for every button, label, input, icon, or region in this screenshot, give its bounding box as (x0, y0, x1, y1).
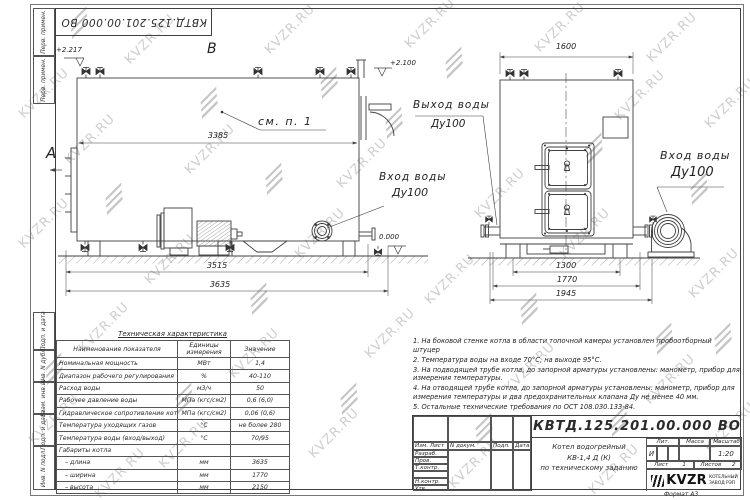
spec-name: Габариты котла (57, 444, 178, 456)
tb-scale-value: 1:20 (710, 446, 742, 461)
dim-1600: 1600 (545, 43, 587, 51)
note-item: 3. На подводящей трубе котла, до запорно… (413, 366, 740, 384)
sheet-value: 1 (682, 462, 686, 468)
spec-header-row: Наименование показателя Единицы измерени… (57, 341, 290, 358)
logo-sub-line: ЗАВОД РЭП (709, 481, 738, 487)
kvzr-logo: KVZR КОТЕЛЬНЫЙ ЗАВОД РЭП (646, 469, 742, 491)
tb-sign-label (413, 471, 448, 478)
view-label-b: В (207, 42, 217, 56)
sheets-label: Листов (700, 462, 721, 468)
spec-name: Гидравлическое сопротивление котла (57, 407, 178, 419)
table-row: Габариты котла (57, 444, 290, 456)
tb-rev-header: N докум. (448, 442, 491, 450)
elevation-mark-icon (64, 58, 406, 254)
spec-value: 50 (231, 382, 290, 394)
kvzr-logo-icon (651, 475, 664, 487)
spec-name: Номинальная мощность (57, 358, 178, 370)
tb-cell (513, 450, 531, 491)
spec-name: – длина (57, 457, 178, 469)
kvzr-logo-subtext: КОТЕЛЬНЫЙ ЗАВОД РЭП (709, 475, 738, 486)
spec-unit: МПа (кгс/см2) (178, 407, 231, 419)
view-label-a: А (46, 146, 56, 161)
outlet-dn: Ду100 (431, 119, 465, 130)
tb-cell (448, 416, 491, 442)
kvzr-logo-text: KVZR (666, 473, 707, 488)
tb-cell (491, 416, 513, 442)
tb-sign-label: Утв. (413, 485, 448, 491)
valve-icon (96, 68, 104, 79)
dim-3385: 3385 (196, 132, 240, 140)
spec-unit: % (178, 370, 231, 382)
spec-value (231, 444, 290, 456)
tb-product-name: Котел водогрейный КВ-1,4 Д (К) по технич… (531, 438, 646, 491)
tb-sign-label: Т.контр. (413, 464, 448, 471)
valve-icon (614, 70, 622, 81)
tb-cell (513, 416, 531, 442)
tb-rev-header: Подп. (491, 442, 513, 450)
spec-value: 0,6 (6,0) (231, 395, 290, 407)
table-row: – длинамм3635 (57, 457, 290, 469)
fan-icon (648, 215, 694, 258)
spec-value: 70/95 (231, 432, 290, 444)
fitting-valve-icon (486, 216, 493, 225)
spec-value: не более 280 (231, 419, 290, 431)
spec-header: Единицы измерения (178, 341, 231, 358)
tb-sheet: Лист 1 (646, 461, 694, 469)
table-row: – ширинамм1770 (57, 469, 290, 481)
elevation-right: +2.100 (390, 60, 416, 67)
drain-valve-icon (139, 241, 147, 252)
tb-mass-header: Масса (679, 438, 710, 446)
inlet-label-end: Вход воды (660, 150, 730, 161)
spec-name: Температура воды (вход/выход) (57, 432, 178, 444)
elevation-zero: 0.000 (379, 234, 399, 241)
spec-name: Рабочее давление воды (57, 395, 178, 407)
valve-icon (506, 70, 514, 81)
boiler-side-view (50, 58, 428, 296)
spec-unit: °С (178, 419, 231, 431)
spec-header: Наименование показателя (57, 341, 178, 358)
format-label: Формат А3 (664, 491, 698, 498)
spec-unit: °С (178, 432, 231, 444)
tb-cell (448, 450, 491, 491)
spec-name: Диапазон рабочего регулирования (57, 370, 178, 382)
spec-name: – ширина (57, 469, 178, 481)
tb-rev-header: Дата (513, 442, 531, 450)
spec-value: 1,4 (231, 358, 290, 370)
tb-sign-label: Н.контр. (413, 478, 448, 485)
spec-name: – высота (57, 481, 178, 493)
tb-lit-value: И (646, 446, 657, 461)
spec-unit: м3/ч (178, 382, 231, 394)
spec-value: 2150 (231, 481, 290, 493)
tb-doc-number: КВТД.125.201.00.000 ВО (531, 416, 742, 438)
spec-unit: МПа (кгс/см2) (178, 395, 231, 407)
table-row: Температура уходящих газов°Сне более 280 (57, 419, 290, 431)
valve-icon (316, 68, 324, 79)
note-item: 4. На отводящей трубе котла, до запорной… (413, 384, 740, 402)
product-name-line: Котел водогрейный (552, 442, 626, 453)
sheets-value: 2 (732, 462, 736, 468)
spec-unit: мм (178, 457, 231, 469)
tb-sign-label: Разраб. (413, 450, 448, 457)
see-note-label: см. п. 1 (258, 116, 313, 127)
dim-3515: 3515 (195, 262, 239, 270)
dim-3635: 3635 (198, 281, 242, 289)
tb-rev-header: Изм. Лист (413, 442, 448, 450)
dim-1945: 1945 (545, 290, 587, 298)
spec-unit: мм (178, 469, 231, 481)
spec-unit (178, 444, 231, 456)
tb-sheets: Листов 2 (694, 461, 742, 469)
sheet: KVZR.RUKVZR.RUKVZR.RUKVZR.RUKVZR.RUKVZR.… (0, 0, 750, 500)
note-item: 5. Остальные технические требования по О… (413, 403, 740, 412)
note-item: 1. На боковой стенке котла в области топ… (413, 337, 740, 355)
spec-value: 40-110 (231, 370, 290, 382)
table-row: Номинальная мощностьМВт1,4 (57, 358, 290, 370)
valve-icon (520, 70, 528, 81)
inlet-flange (312, 221, 332, 241)
outlet-label: Выход воды (413, 100, 490, 111)
tb-mass-value (679, 446, 710, 461)
inlet-dn-side: Ду100 (392, 187, 428, 198)
spec-table: Техническая характеристика Наименование … (56, 330, 289, 494)
tb-cell (491, 450, 513, 491)
table-row: Расход водым3/ч50 (57, 382, 290, 394)
table-row: Температура воды (вход/выход)°С70/95 (57, 432, 290, 444)
title-block: Изм. Лист N докум. Подп. Дата Разраб. Пр… (412, 415, 741, 490)
spec-value: 0,06 (0,6) (231, 407, 290, 419)
table-row: Диапазон рабочего регулирования%40-110 (57, 370, 290, 382)
spec-value: 1770 (231, 469, 290, 481)
drain-valve-icon (374, 246, 381, 255)
spec-name: Расход воды (57, 382, 178, 394)
note-item: 2. Температура воды на входе 70°С, на вы… (413, 356, 740, 365)
spec-header: Значение (231, 341, 290, 358)
tb-lit-header: Лит. (646, 438, 679, 446)
dim-1300: 1300 (545, 262, 587, 270)
tb-cell (413, 416, 448, 442)
table-row: – высотамм2150 (57, 481, 290, 493)
furnace-doors (535, 143, 594, 236)
spec-name: Температура уходящих газов (57, 419, 178, 431)
spec-table-title: Техническая характеристика (56, 330, 289, 338)
sheet-label: Лист (654, 462, 668, 468)
tb-sign-label: Пров. (413, 457, 448, 464)
dim-1770: 1770 (546, 276, 588, 284)
product-name-line: КВ-1,4 Д (К) (567, 453, 611, 464)
valve-icon (347, 68, 355, 79)
spec-unit: мм (178, 481, 231, 493)
inlet-dn-end: Ду100 (671, 166, 714, 179)
tb-cell (668, 446, 679, 461)
tb-scale-header: Масштаб (710, 438, 742, 446)
table-row: Гидравлическое сопротивление котлаМПа (к… (57, 407, 290, 419)
valve-icon (82, 68, 90, 79)
elevation-left: +2.217 (56, 47, 82, 54)
inlet-label-side: Вход воды (379, 172, 447, 183)
valve-icon (254, 68, 262, 79)
spec-unit: МВт (178, 358, 231, 370)
spec-value: 3635 (231, 457, 290, 469)
product-name-line: по техническому заданию (540, 463, 637, 474)
tb-cell (657, 446, 668, 461)
door-bolts (544, 145, 590, 235)
table-row: Рабочее давление водыМПа (кгс/см2)0,6 (6… (57, 395, 290, 407)
technical-notes: 1. На боковой стенке котла в области топ… (413, 337, 740, 413)
